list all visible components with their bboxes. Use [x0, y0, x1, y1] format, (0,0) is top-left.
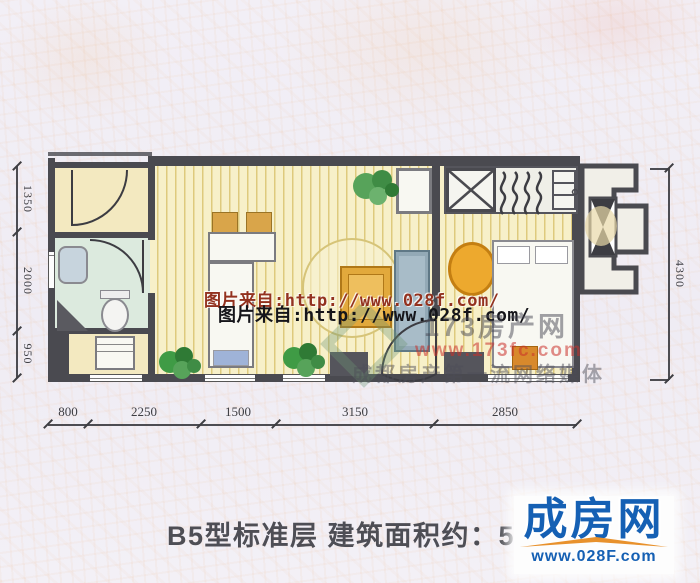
caption-title-text: B5型标准层 建筑面积约：55m — [167, 521, 557, 551]
caption-title: B5型标准层 建筑面积约：55m2 — [167, 514, 566, 553]
site-logo-name: 成房网 — [514, 498, 674, 542]
dim-line — [668, 168, 670, 380]
plant-icon — [353, 170, 399, 205]
dim-label: 2850 — [492, 404, 518, 420]
site-logo: 成房网 www.028F.com — [514, 496, 674, 574]
dim-label: 2250 — [131, 404, 157, 420]
dim-label: 1350 — [20, 185, 35, 213]
shower-corner — [57, 300, 88, 331]
dim-line — [48, 424, 577, 426]
dim-label: 800 — [58, 404, 78, 420]
dim-label: 2000 — [20, 267, 35, 295]
dim-label: 950 — [20, 344, 35, 365]
plant-icon — [159, 347, 201, 379]
agency-watermark-name: 173房产网 — [424, 305, 568, 344]
plant-icon — [283, 343, 325, 377]
door-stop-dot — [573, 190, 578, 195]
dim-label: 1500 — [225, 404, 251, 420]
dim-label: 3150 — [342, 404, 368, 420]
agency-watermark-slogan: 成都房产第一流网络媒体 — [352, 358, 605, 387]
site-logo-url: www.028F.com — [514, 548, 674, 566]
bay-cushion — [585, 206, 617, 246]
floorplan-page: 800 2250 1500 3150 2850 1350 2000 950 43… — [0, 0, 700, 583]
dim-line — [16, 166, 18, 378]
dim-label: 4300 — [672, 260, 687, 288]
clothes-hangers-icon — [501, 172, 541, 214]
